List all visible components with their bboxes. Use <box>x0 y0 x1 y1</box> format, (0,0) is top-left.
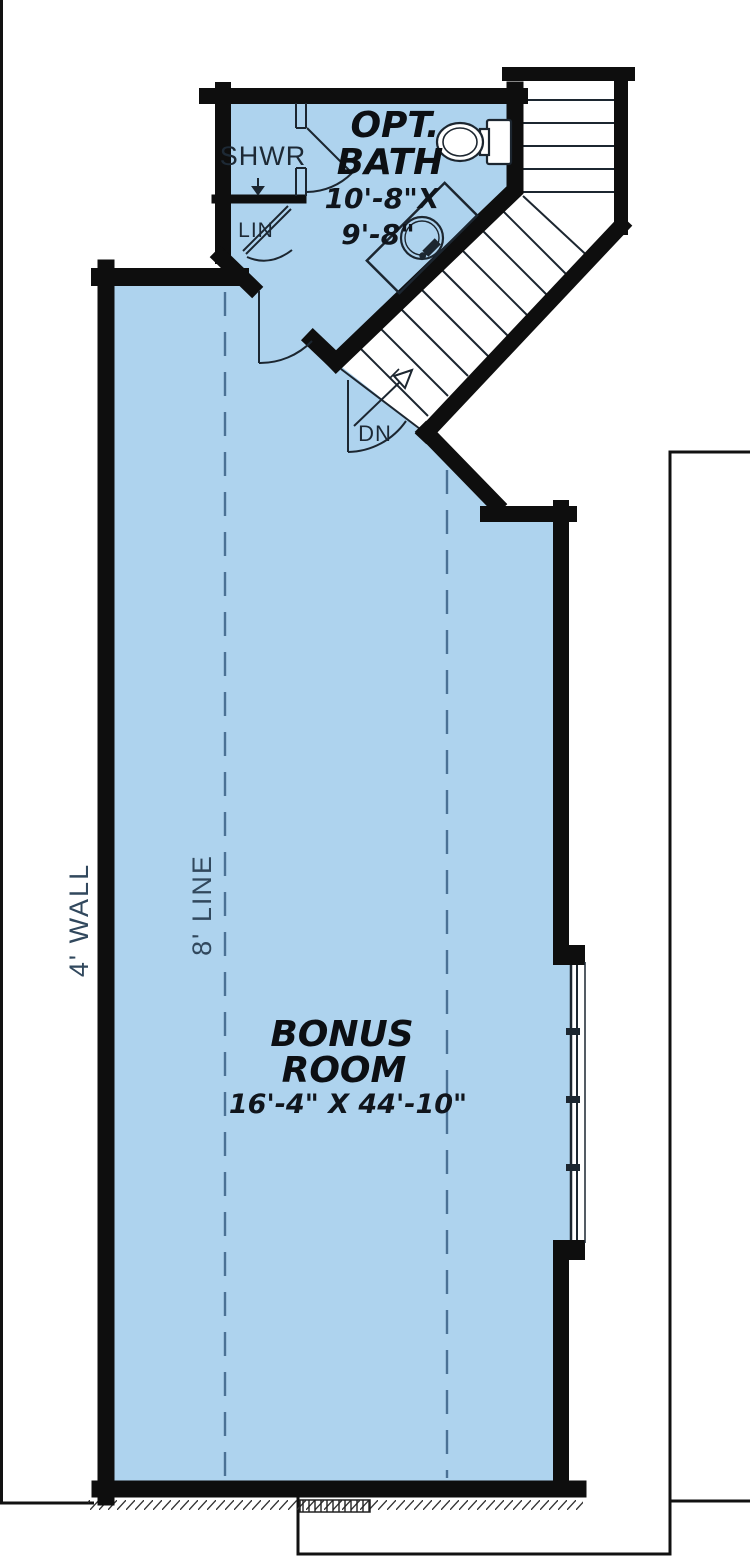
foundation-hatching <box>88 1500 583 1512</box>
four-foot-wall-note: 4' WALL <box>64 863 94 977</box>
linen-label: LIN <box>238 219 274 242</box>
bonus-room-name-line1: BONUS <box>270 1014 413 1055</box>
window-mullion <box>566 1028 580 1035</box>
window-mullion <box>566 1164 580 1171</box>
floor-plan: SHWR LIN OPT. BATH 10'-8"X 9'-8" DN BONU… <box>0 0 750 1559</box>
bath-room-name-line2: BATH <box>337 142 444 183</box>
bath-room-name-line1: OPT. <box>350 105 439 146</box>
bath-dimension-line1: 10'-8"X <box>325 182 441 215</box>
sheet-border-lines <box>2 0 95 1503</box>
bath-dimension-line2: 9'-8" <box>341 218 415 251</box>
bonus-room-dimension: 16'-4" X 44'-10" <box>229 1089 467 1120</box>
floor-plan-drawing: SHWR LIN OPT. BATH 10'-8"X 9'-8" DN BONU… <box>0 0 750 1559</box>
adjacent-roof-outline <box>670 452 750 1501</box>
toilet-tank <box>487 120 511 164</box>
toilet-bowl-inner <box>443 128 477 156</box>
stairs-down-label: DN <box>358 421 392 446</box>
bonus-room-name-line2: ROOM <box>282 1050 407 1091</box>
window-jamb-bottom <box>553 1240 585 1260</box>
toilet-icon <box>437 120 511 164</box>
roof-outline-right <box>670 452 750 1501</box>
eight-foot-line-note: 8' LINE <box>187 854 217 956</box>
shower-label: SHWR <box>220 141 307 171</box>
left-border-line <box>2 0 95 1503</box>
window-mullion <box>566 1096 580 1103</box>
window-jamb-top <box>553 945 585 965</box>
dense-hatch-band <box>300 1500 370 1512</box>
